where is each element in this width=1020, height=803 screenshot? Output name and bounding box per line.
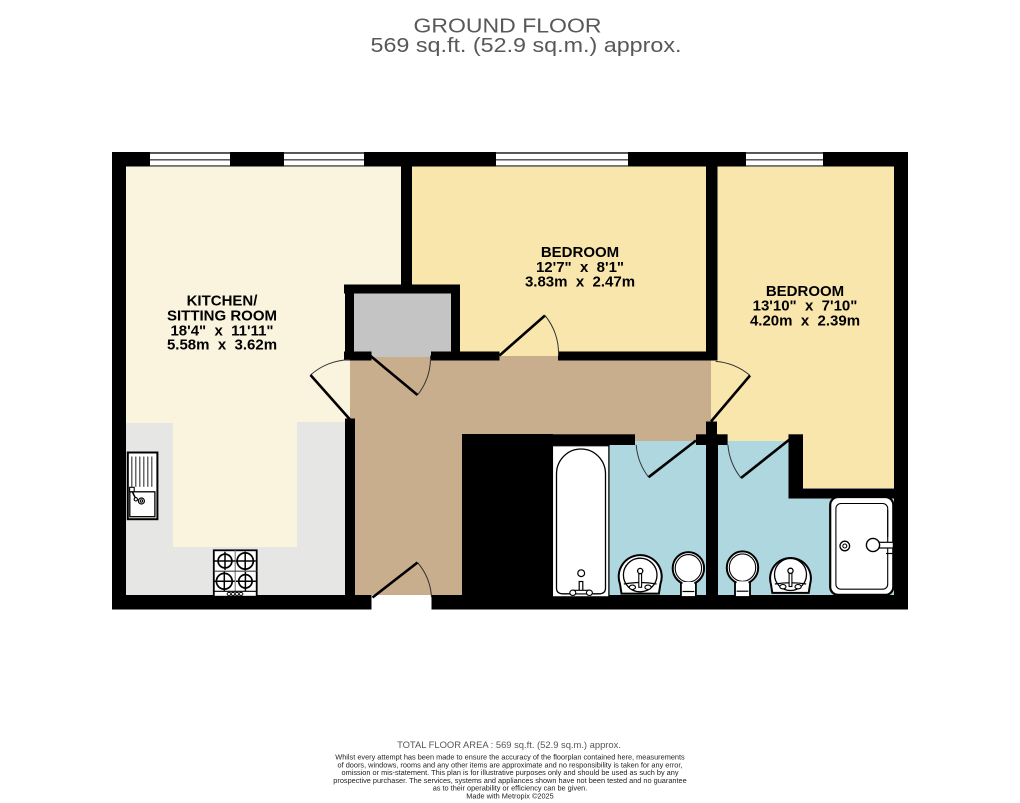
svg-text:TOTAL FLOOR AREA : 569 sq.ft.: TOTAL FLOOR AREA : 569 sq.ft. (52.9 sq.m… — [397, 739, 621, 750]
svg-text:3.83m x 2.47m: 3.83m x 2.47m — [525, 274, 635, 291]
svg-text:5.58m x 3.62m: 5.58m x 3.62m — [167, 337, 277, 354]
svg-text:4.20m x 2.39m: 4.20m x 2.39m — [750, 312, 860, 329]
svg-text:569 sq.ft. (52.9 sq.m.) approx: 569 sq.ft. (52.9 sq.m.) approx. — [371, 35, 682, 57]
svg-text:GROUND FLOOR: GROUND FLOOR — [414, 15, 602, 37]
svg-text:Made with Metropix ©2025: Made with Metropix ©2025 — [466, 792, 553, 801]
